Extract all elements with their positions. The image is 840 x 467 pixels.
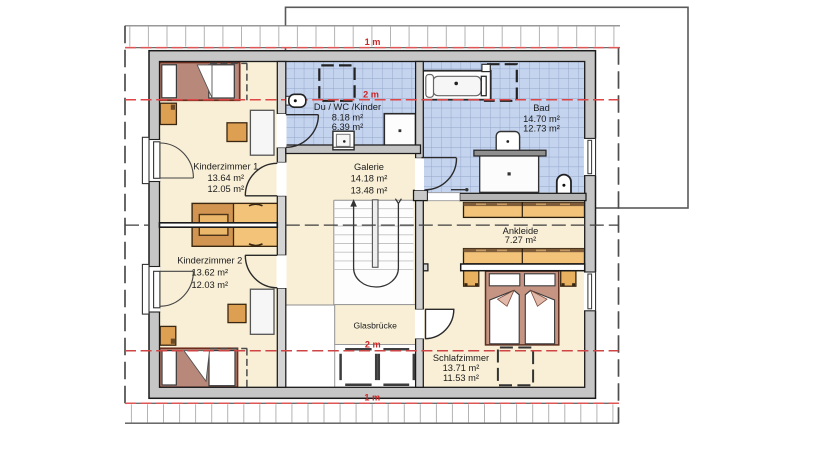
svg-text:6.39 m²: 6.39 m² xyxy=(332,122,364,132)
svg-text:Galerie: Galerie xyxy=(354,162,384,172)
svg-text:Kinderzimmer 2: Kinderzimmer 2 xyxy=(177,256,242,266)
svg-text:13.71 m²: 13.71 m² xyxy=(443,363,480,373)
svg-text:14.18 m²: 14.18 m² xyxy=(351,173,388,183)
svg-text:13.48 m²: 13.48 m² xyxy=(351,186,388,196)
svg-text:12.05 m²: 12.05 m² xyxy=(207,184,244,194)
svg-text:11.53 m²: 11.53 m² xyxy=(443,373,479,383)
svg-text:Kinderzimmer 1: Kinderzimmer 1 xyxy=(193,161,258,171)
svg-text:1 m: 1 m xyxy=(365,37,381,47)
svg-text:12.73 m²: 12.73 m² xyxy=(523,124,560,134)
svg-text:7.27 m²: 7.27 m² xyxy=(505,235,537,245)
svg-text:13.64 m²: 13.64 m² xyxy=(207,173,244,183)
svg-text:Bad: Bad xyxy=(533,103,550,113)
svg-text:Du / WC /Kinder: Du / WC /Kinder xyxy=(314,102,381,112)
svg-text:2 m: 2 m xyxy=(363,89,379,99)
svg-text:8.18 m²: 8.18 m² xyxy=(332,112,364,122)
svg-text:13.62 m²: 13.62 m² xyxy=(191,267,228,277)
svg-text:Glasbrücke: Glasbrücke xyxy=(353,320,397,330)
svg-text:Schlafzimmer: Schlafzimmer xyxy=(433,353,489,363)
svg-text:2 m: 2 m xyxy=(365,340,381,350)
svg-text:1 m: 1 m xyxy=(364,393,380,403)
svg-text:12.03 m²: 12.03 m² xyxy=(191,280,228,290)
